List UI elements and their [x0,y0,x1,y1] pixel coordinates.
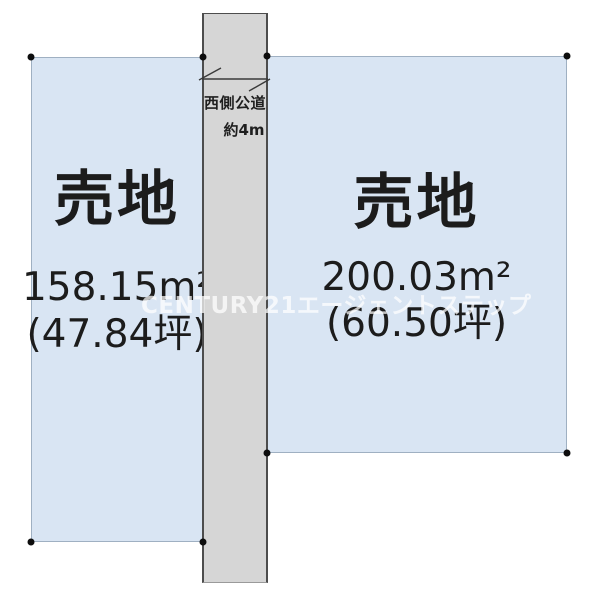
road-name-label: 西側公道 [202,95,268,112]
road-width-label: 約4m [202,122,268,139]
watermark: CENTURY21エージェントステップ [141,286,531,320]
parcel-right: 売地 200.03m² (60.50坪) [266,56,567,453]
corner-marker [28,539,35,546]
corner-marker [264,450,271,457]
corner-marker [264,53,271,60]
site-plan: 売地 158.15m² (47.84坪) 売地 200.03m² (60.50坪… [0,0,600,600]
corner-marker [564,53,571,60]
corner-marker [28,54,35,61]
parcel-right-title: 売地 [267,173,566,233]
corner-marker [200,539,207,546]
parcel-left-area-tsubo: (47.84坪) [26,315,207,354]
corner-marker [564,450,571,457]
parcel-left-title: 売地 [32,170,202,230]
corner-marker [200,54,207,61]
